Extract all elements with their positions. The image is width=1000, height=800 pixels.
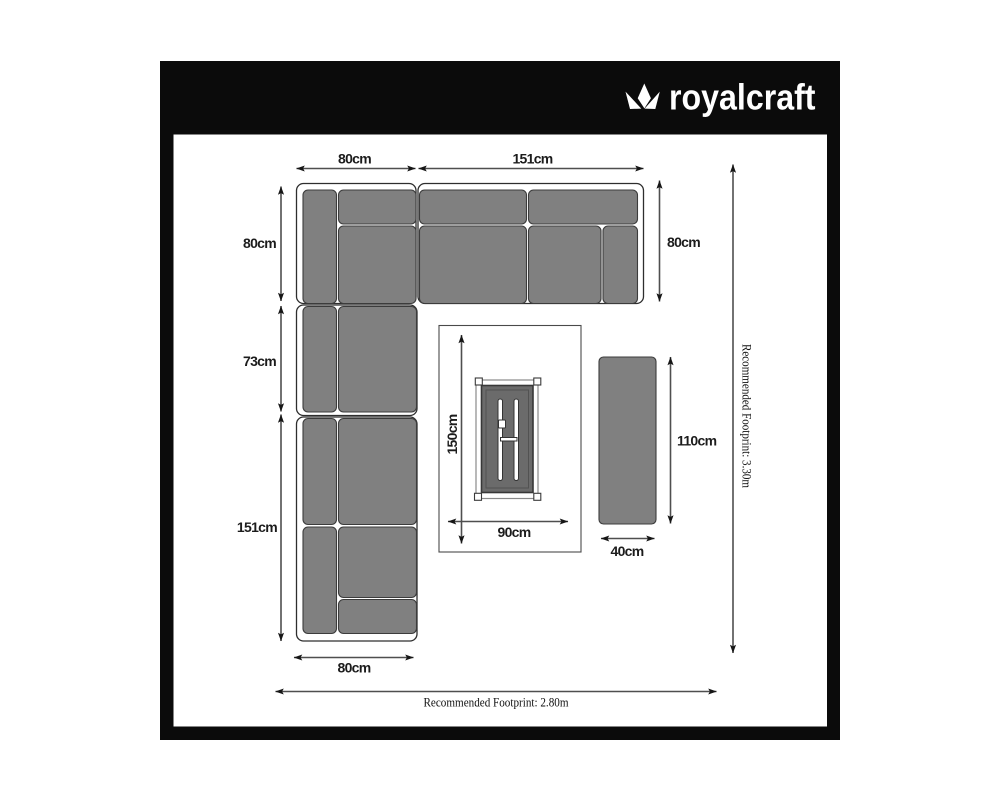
svg-text:80cm: 80cm (243, 235, 276, 251)
svg-text:Recommended Footprint: 3.30m: Recommended Footprint: 3.30m (740, 344, 755, 488)
svg-text:90cm: 90cm (497, 524, 530, 540)
svg-text:royalcraft: royalcraft (669, 76, 816, 117)
svg-text:151cm: 151cm (237, 519, 277, 535)
svg-text:151cm: 151cm (512, 151, 552, 167)
svg-text:73cm: 73cm (243, 353, 276, 369)
svg-text:150cm: 150cm (444, 414, 460, 454)
svg-text:80cm: 80cm (337, 660, 370, 676)
svg-text:40cm: 40cm (610, 543, 643, 559)
svg-text:110cm: 110cm (677, 433, 717, 449)
svg-text:80cm: 80cm (338, 151, 371, 167)
svg-text:80cm: 80cm (667, 234, 700, 250)
svg-text:Recommended Footprint: 2.80m: Recommended Footprint: 2.80m (424, 695, 569, 710)
